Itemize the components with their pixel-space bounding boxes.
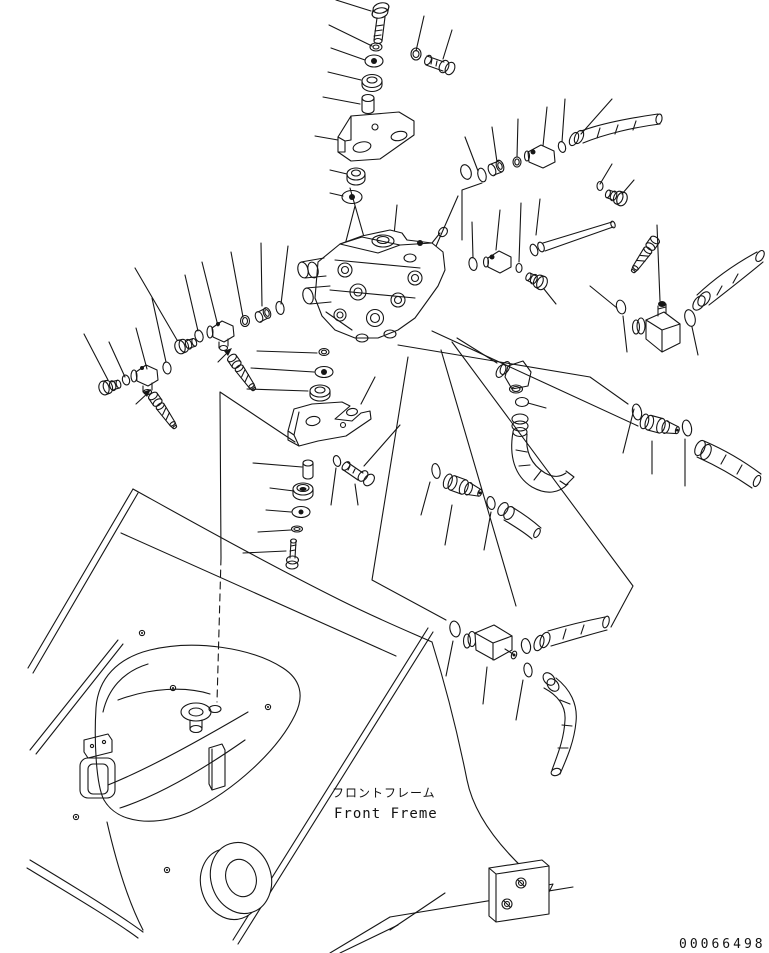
frame-bolt-holes	[73, 630, 270, 872]
grease-nipple-1	[147, 391, 179, 431]
tee-fitting-2	[207, 321, 234, 351]
elbow-plug-left	[173, 335, 198, 355]
o-ring-left-2	[162, 361, 172, 374]
exploded-diagram: フロントフレーム Front Freme 00066498	[0, 0, 769, 953]
mounting-bolt-angled	[340, 460, 376, 488]
frame-label-jp: フロントフレーム	[332, 786, 436, 800]
spacer-ring-mid	[347, 168, 365, 185]
washer-rubber-top	[365, 55, 383, 67]
o-ring-mid-a2	[468, 257, 478, 271]
o-ring-right-i	[615, 299, 627, 315]
o-ring-left-3	[194, 329, 205, 343]
hose-fitting-mid	[496, 501, 542, 539]
o-ring-bottom-s	[520, 638, 531, 654]
o-ring-mid-a	[459, 163, 474, 181]
parts-diagram-page: フロントフレーム Front Freme 00066498	[0, 0, 769, 953]
o-ring-mid-b2	[516, 264, 522, 273]
o-ring-right-n	[681, 419, 693, 436]
elbow-block-fitting	[633, 301, 681, 352]
block-fitting-mid-1	[525, 145, 556, 168]
adapter-fitting-left	[254, 307, 272, 324]
washer-flat-top	[362, 75, 382, 92]
steel-pipe	[529, 221, 616, 257]
washer-small-top	[370, 43, 382, 51]
leader-lines	[84, 0, 698, 720]
tee-fitting-1	[131, 365, 158, 395]
o-ring-stack	[332, 455, 342, 467]
o-ring-bottom-u	[523, 662, 533, 677]
o-ring-mid-h	[597, 182, 603, 191]
plug-left-lower	[97, 377, 122, 396]
o-ring-right-j	[683, 308, 697, 327]
o-ring-valve-top	[476, 167, 487, 183]
nut-stack	[319, 349, 329, 356]
frame-boss	[181, 703, 221, 733]
front-frame	[27, 489, 573, 953]
washer-rubber-stack-2	[292, 507, 310, 518]
washer-rubber-mid	[342, 191, 362, 204]
hose-coupling-right	[639, 413, 681, 438]
o-ring-mid-e	[557, 141, 567, 153]
o-ring-mid-z	[431, 463, 441, 479]
hex-nut-left	[241, 316, 250, 327]
hex-nut-mid	[513, 157, 521, 167]
adapter-fitting-mid	[487, 159, 506, 177]
o-ring-left-4	[275, 301, 285, 315]
hex-bolt-stack	[286, 539, 299, 569]
washer-rubber-stack	[315, 367, 333, 378]
lower-mounting-bracket	[288, 402, 371, 446]
washer-small-stack	[292, 526, 303, 532]
frame-label-en: Front Freme	[334, 806, 438, 822]
hose-right-lower	[693, 439, 763, 488]
plug-mid-right-2	[523, 269, 549, 291]
hose-bottom-straight	[532, 615, 610, 652]
hose-top-right	[567, 114, 662, 147]
mounting-plate	[489, 860, 549, 922]
cylinder-stack	[303, 460, 313, 479]
o-ring-bottom-q	[448, 620, 461, 638]
hex-bolt-top-right	[423, 54, 457, 76]
o-ring-left-1	[121, 374, 130, 385]
drawing-number: 00066498	[679, 937, 766, 952]
tee-block-bottom	[464, 625, 518, 660]
assembly-direction-arrows	[136, 348, 232, 404]
grease-nipple-3	[628, 235, 660, 275]
hose-right-upper	[690, 249, 766, 312]
upper-mounting-bracket	[338, 112, 414, 161]
control-valve-assembly	[296, 226, 449, 342]
o-ring-mid-x	[516, 398, 529, 407]
pivot-bore	[191, 834, 280, 927]
grease-nipple-2	[226, 353, 258, 393]
block-fitting-mid-2	[484, 251, 512, 273]
hose-bottom-curved	[541, 670, 577, 776]
elbow-fitting-mid	[494, 360, 531, 393]
spacer-stack	[310, 385, 330, 401]
hex-bolt-top	[371, 1, 390, 43]
rubber-cushion-stack	[293, 483, 313, 500]
hose-curved-mid	[512, 414, 574, 492]
spacer-cylinder-top	[362, 95, 374, 114]
